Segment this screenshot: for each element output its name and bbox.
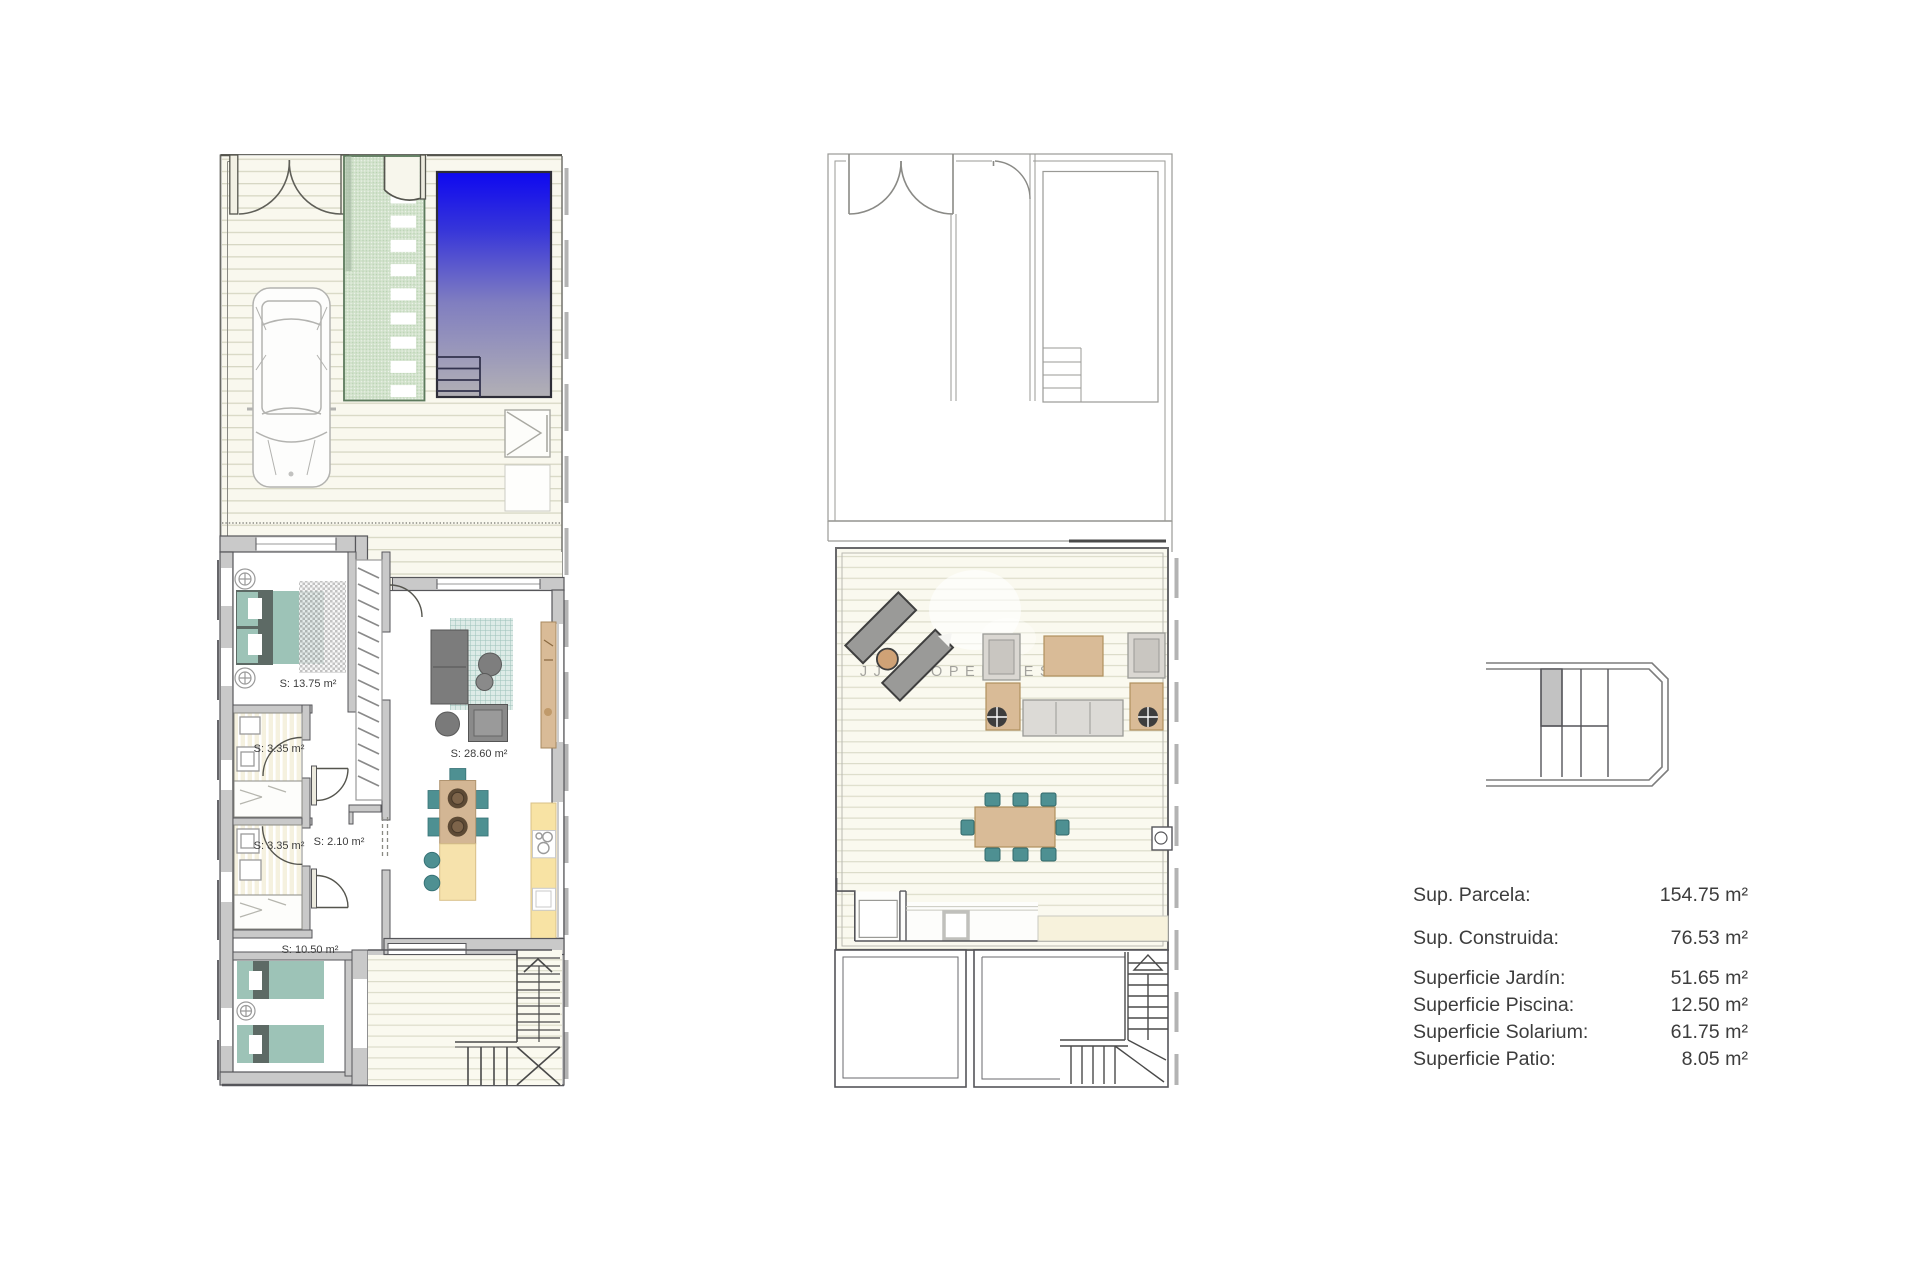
svg-text:8.05 m²: 8.05 m² — [1682, 1048, 1749, 1070]
svg-text:S: 13.75 m²: S: 13.75 m² — [280, 678, 337, 690]
svg-text:S: 10.50 m²: S: 10.50 m² — [282, 944, 339, 956]
svg-text:12.50 m²: 12.50 m² — [1671, 994, 1749, 1016]
svg-text:51.65 m²: 51.65 m² — [1671, 967, 1749, 989]
svg-text:154.75 m²: 154.75 m² — [1660, 884, 1749, 906]
svg-text:S: 3.35 m²: S: 3.35 m² — [254, 840, 305, 852]
svg-text:Superficie Piscina:: Superficie Piscina: — [1413, 994, 1574, 1016]
svg-text:Superficie Patio:: Superficie Patio: — [1413, 1048, 1556, 1070]
svg-text:S: 2.10 m²: S: 2.10 m² — [314, 836, 365, 848]
svg-text:76.53 m²: 76.53 m² — [1671, 927, 1749, 949]
svg-text:Sup. Parcela:: Sup. Parcela: — [1413, 884, 1531, 906]
svg-text:S: 3.35 m²: S: 3.35 m² — [254, 743, 305, 755]
svg-text:S: 28.60 m²: S: 28.60 m² — [451, 748, 508, 760]
svg-text:61.75 m²: 61.75 m² — [1671, 1021, 1749, 1043]
svg-text:Sup. Construida:: Sup. Construida: — [1413, 927, 1559, 949]
svg-text:Superficie Jardín:: Superficie Jardín: — [1413, 967, 1565, 989]
svg-text:Superficie Solarium:: Superficie Solarium: — [1413, 1021, 1588, 1043]
